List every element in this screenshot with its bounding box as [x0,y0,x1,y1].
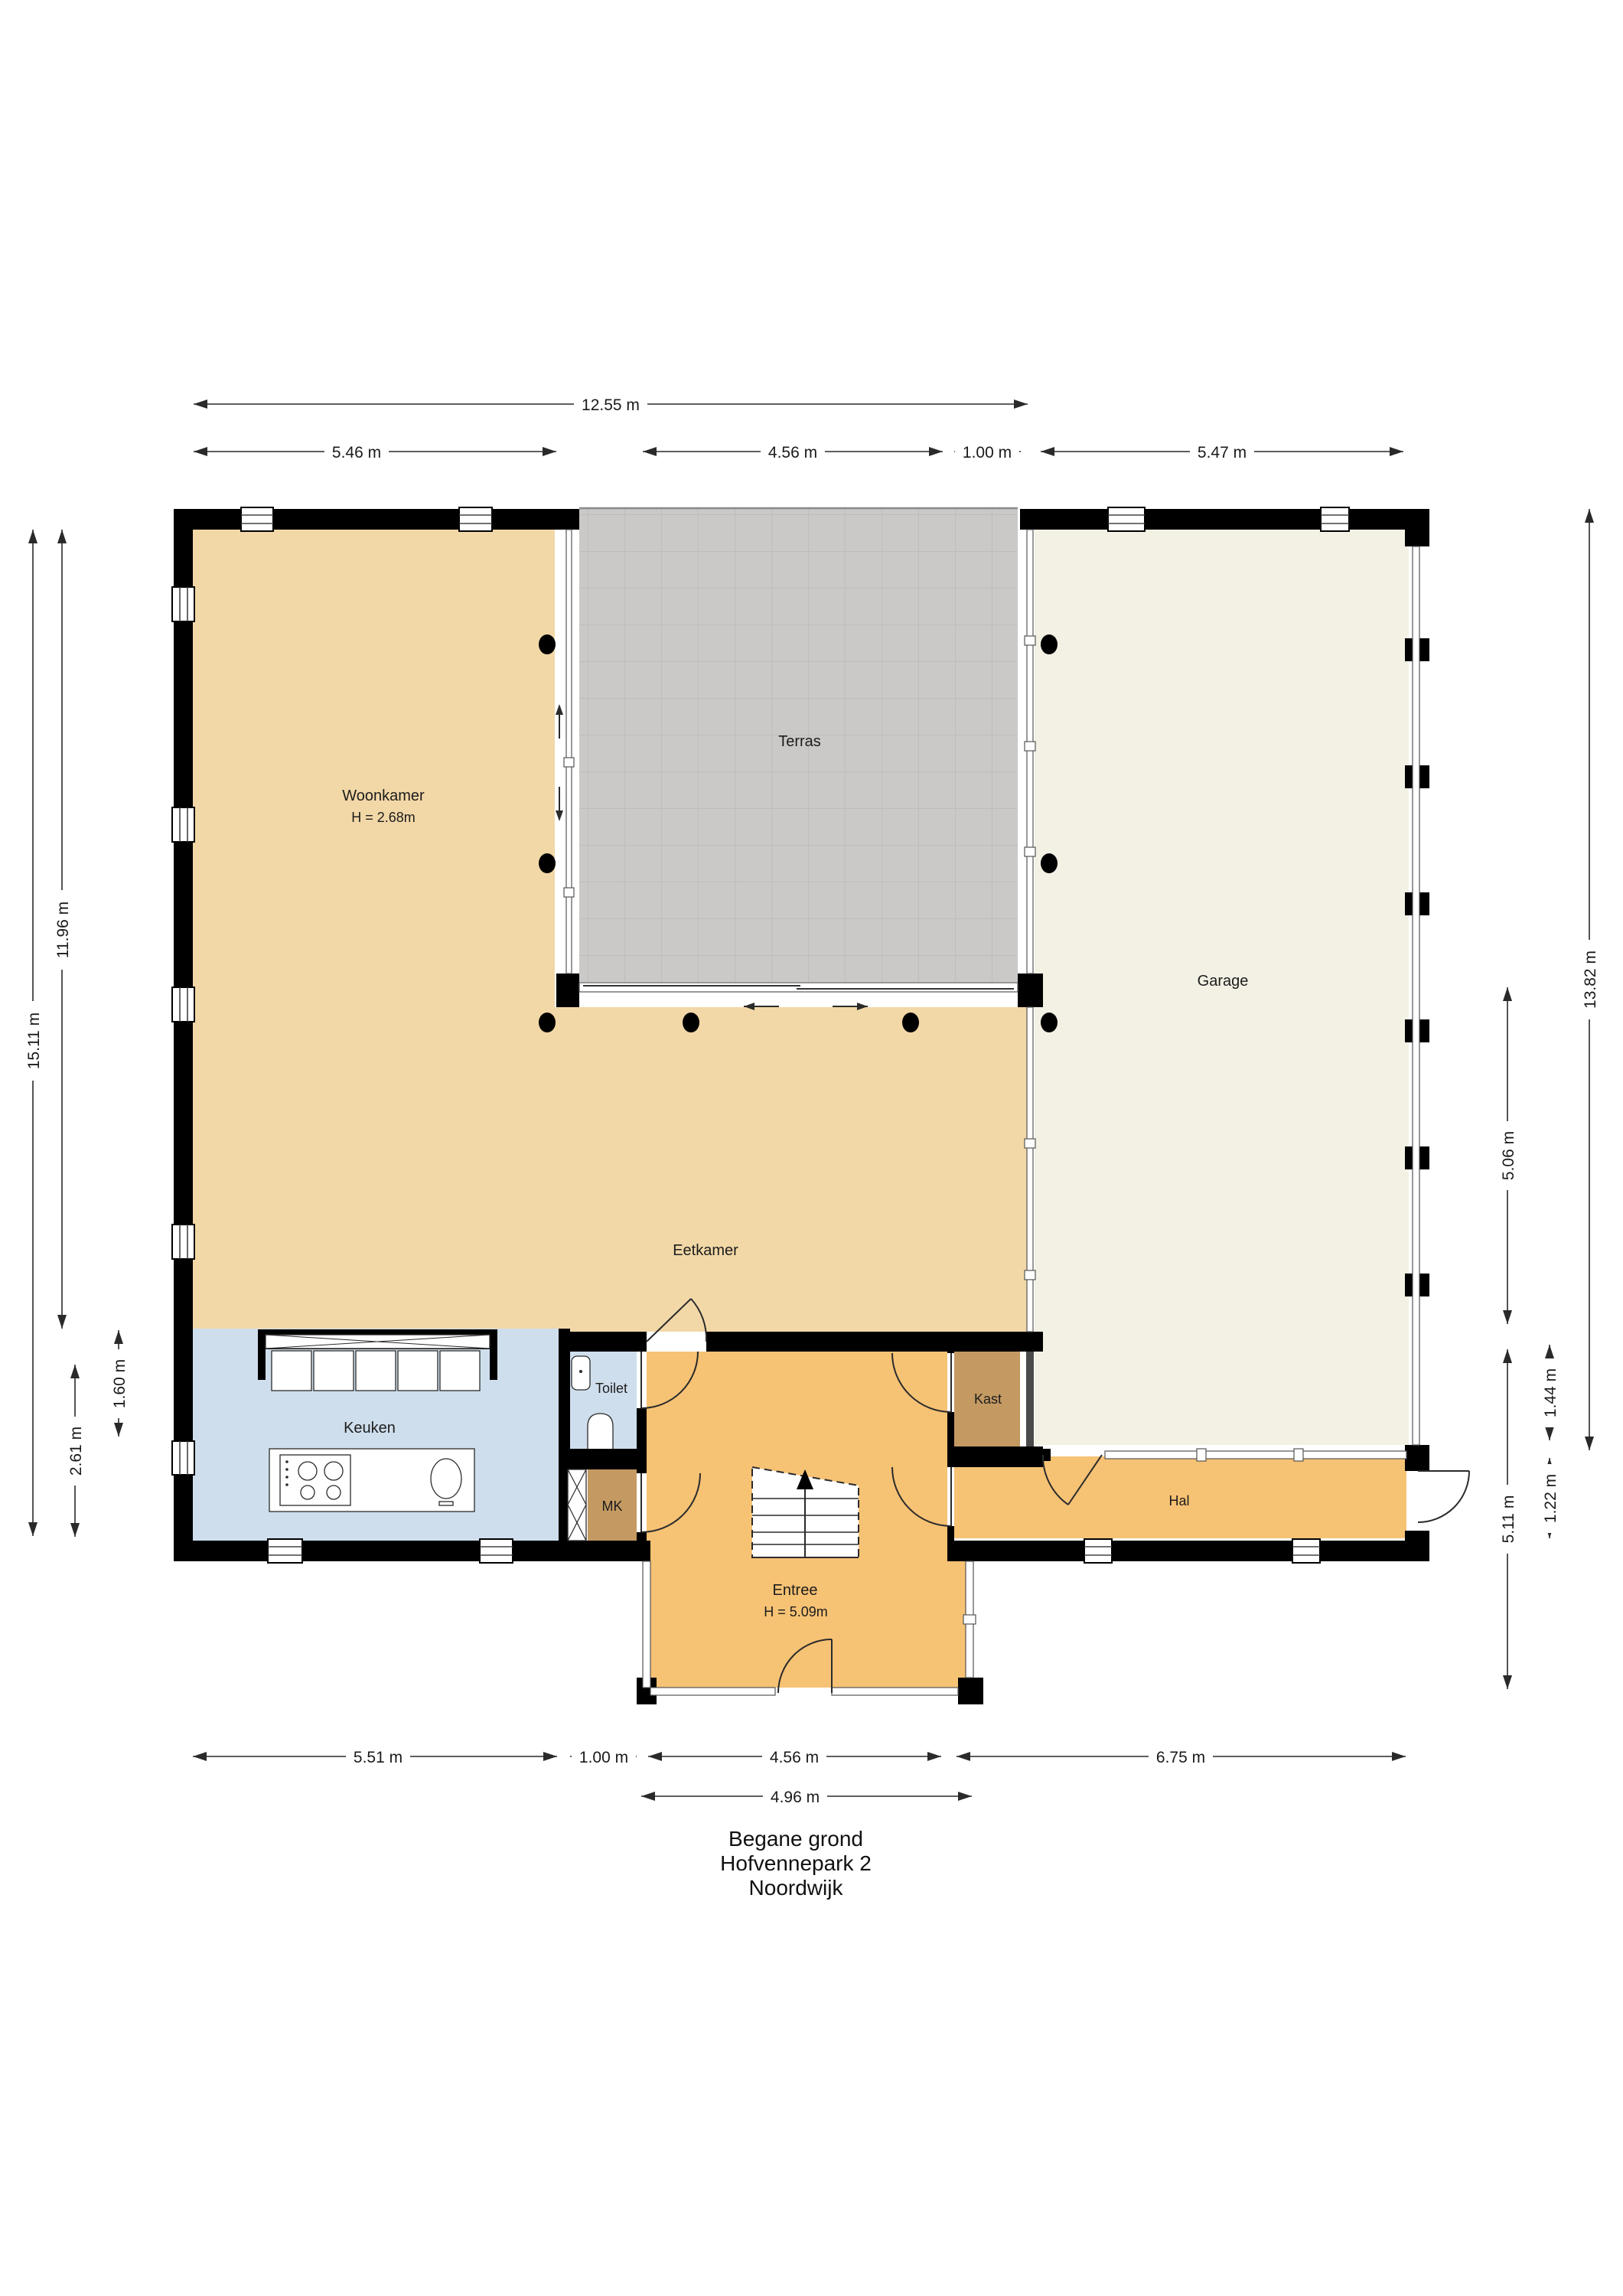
mullion [1025,1139,1035,1148]
hal-label: Hal [1168,1493,1189,1508]
garage-label: Garage [1198,973,1249,990]
slide-arrow-up-icon [556,704,563,739]
dim-top-strip: 1.00 m [954,439,1021,464]
svg-text:6.75 m: 6.75 m [1156,1749,1205,1766]
toilet-bottom-wall [559,1449,647,1469]
window-left-2 [172,807,194,842]
svg-text:1.00 m: 1.00 m [963,444,1012,461]
entree-hal-wall-bottom [947,1526,954,1561]
svg-text:5.47 m: 5.47 m [1198,444,1247,461]
svg-text:5.51 m: 5.51 m [354,1749,402,1766]
svg-text:12.55 m: 12.55 m [582,396,640,414]
window-keuken-bottom-1 [268,1539,302,1563]
dim-right-hal: 1.22 m [1538,1458,1561,1538]
column [1041,853,1058,873]
kast-label: Kast [974,1391,1002,1407]
mullion [1025,636,1035,645]
glass-woonkamer-terras [566,530,572,974]
dim-left-counter: 1.60 m [107,1330,130,1437]
tap-icon [439,1502,453,1505]
dim-bottom-hal: 6.75 m [957,1744,1406,1769]
kast-left-wall-top [947,1332,954,1353]
svg-text:5.06 m: 5.06 m [1500,1131,1517,1180]
kast-bottom-wall [947,1446,1043,1467]
column [539,853,556,873]
top-wall-left [174,509,579,530]
front-door-hal [1418,1471,1469,1522]
eetkamer-label: Eetkamer [673,1242,738,1259]
window-left-5 [172,1441,194,1475]
window-keuken-bottom-2 [480,1539,513,1563]
glass-garage-hal [1105,1451,1406,1459]
dim-bottom-toilet: 1.00 m [570,1744,637,1769]
glass-porch-bottom-left [650,1688,775,1695]
kitchen-island [269,1449,474,1512]
window-left-4 [172,1225,194,1259]
keuken-bottom-wall [174,1541,650,1561]
terras-corner-right [1018,974,1043,1007]
cabinet [440,1351,480,1391]
garage-hal-door-jamb [1043,1449,1051,1461]
glass-garage-terras [1027,530,1033,974]
svg-text:2.61 m: 2.61 m [67,1427,85,1476]
column [902,1013,919,1032]
right-wall-top-corner [1405,509,1429,546]
svg-text:4.56 m: 4.56 m [768,444,817,461]
cabinet [356,1351,396,1391]
cabinet [314,1351,354,1391]
dim-bottom-entree: 4.56 m [648,1744,941,1769]
floorplan-page: Woonkamer H = 2.68m Terras Garage Eetkam… [0,0,1623,2296]
woonkamer-floor [193,530,555,1332]
dim-left-keuken: 2.61 m [64,1365,86,1537]
woonkamer-height-note: H = 2.68m [351,810,416,825]
glass-porch-left [643,1561,650,1688]
dim-bottom-porch: 4.96 m [641,1784,972,1808]
svg-text:4.56 m: 4.56 m [770,1749,819,1766]
window-top-2 [459,507,492,531]
garage-side-door-panel [1026,1352,1034,1446]
mullion [963,1615,976,1624]
dim-left-woonkamer: 11.96 m [51,530,73,1329]
woonkamer-label: Woonkamer [342,788,425,804]
column [683,1013,699,1032]
top-wall-garage [1020,509,1429,530]
hal-bottom-wall [958,1541,1429,1561]
kitchen-counter [258,1329,497,1391]
column [539,1013,556,1032]
glass-porch-bottom-right [832,1688,958,1695]
dim-top-woonkamer: 5.46 m [194,439,556,464]
toilet-label: Toilet [595,1381,627,1396]
column [1041,634,1058,654]
window-hal-bottom-2 [1292,1539,1320,1563]
svg-text:4.96 m: 4.96 m [771,1789,820,1806]
mullion [1025,847,1035,856]
title-line-address: Hofvennepark 2 [720,1851,872,1875]
dim-bottom-keuken: 5.51 m [193,1744,557,1769]
cooktop [280,1455,350,1505]
slide-arrow-down-icon [556,787,563,821]
svg-text:1.60 m: 1.60 m [111,1359,129,1408]
svg-text:1.44 m: 1.44 m [1542,1368,1559,1417]
window-top-1 [241,507,273,531]
eetkamer-floor [555,1007,1027,1332]
svg-text:5.46 m: 5.46 m [332,444,381,461]
window-left-3 [172,987,194,1022]
svg-text:15.11 m: 15.11 m [25,1013,43,1069]
right-wall-bottom-corner [1405,1531,1429,1561]
porch-post-right [958,1678,983,1704]
terras-corner-left [556,974,579,1007]
svg-text:11.96 m: 11.96 m [54,902,72,958]
sink [431,1459,461,1499]
svg-text:5.11 m: 5.11 m [1500,1495,1517,1544]
mullion [564,888,574,897]
cabinet [398,1351,438,1391]
keuken-label: Keuken [344,1420,396,1437]
mullion [1197,1449,1206,1461]
svg-text:1.00 m: 1.00 m [579,1749,628,1766]
toilet-bowl [588,1414,613,1449]
entree-label: Entree [773,1582,818,1599]
eetkamer-entree-wall [706,1332,1043,1352]
glass-garage-eetkamer [1027,1007,1033,1332]
dim-left-total: 15.11 m [21,530,44,1536]
window-hal-bottom-1 [1084,1539,1112,1563]
right-wall-garage-hal-corner [1405,1445,1429,1471]
window-garage-top-1 [1108,507,1145,531]
mullion [1294,1449,1303,1461]
svg-text:1.22 m: 1.22 m [1542,1474,1559,1523]
mullion [1025,742,1035,751]
mk-shaft [568,1469,586,1541]
toilet-top-wall [561,1332,647,1352]
title-block: Begane grond Hofvennepark 2 Noordwijk [720,1827,872,1900]
glass-garage-right [1413,546,1419,1445]
terras-sliding-door [579,983,1018,992]
dim-right-total: 13.82 m [1578,509,1601,1450]
dim-right-eetkamer: 5.06 m [1496,987,1519,1324]
window-garage-top-2 [1321,507,1349,531]
dim-top-terras: 4.56 m [643,439,943,464]
left-wall [174,509,193,1561]
dim-right-kast: 1.44 m [1538,1345,1561,1440]
mullion [564,758,574,767]
column [1041,1013,1058,1032]
terras-label: Terras [778,733,821,750]
column [539,634,556,654]
floorplan-drawing: Woonkamer H = 2.68m Terras Garage Eetkam… [0,0,1623,2296]
dim-top-garage: 5.47 m [1041,439,1403,464]
title-line-floor: Begane grond [728,1827,863,1851]
title-line-city: Noordwijk [749,1876,844,1900]
entree-height-note: H = 5.09m [764,1604,828,1619]
toilet-door-jamb [637,1332,647,1352]
dim-right-entree: 5.11 m [1496,1349,1519,1689]
svg-text:13.82 m: 13.82 m [1582,951,1599,1009]
dim-top-overall: 12.55 m [194,392,1028,416]
window-left-1 [172,587,194,621]
cabinet [272,1351,311,1391]
mk-side-wall-bottom [637,1532,647,1561]
mullion [1025,1270,1035,1280]
mk-label: MK [602,1499,623,1514]
